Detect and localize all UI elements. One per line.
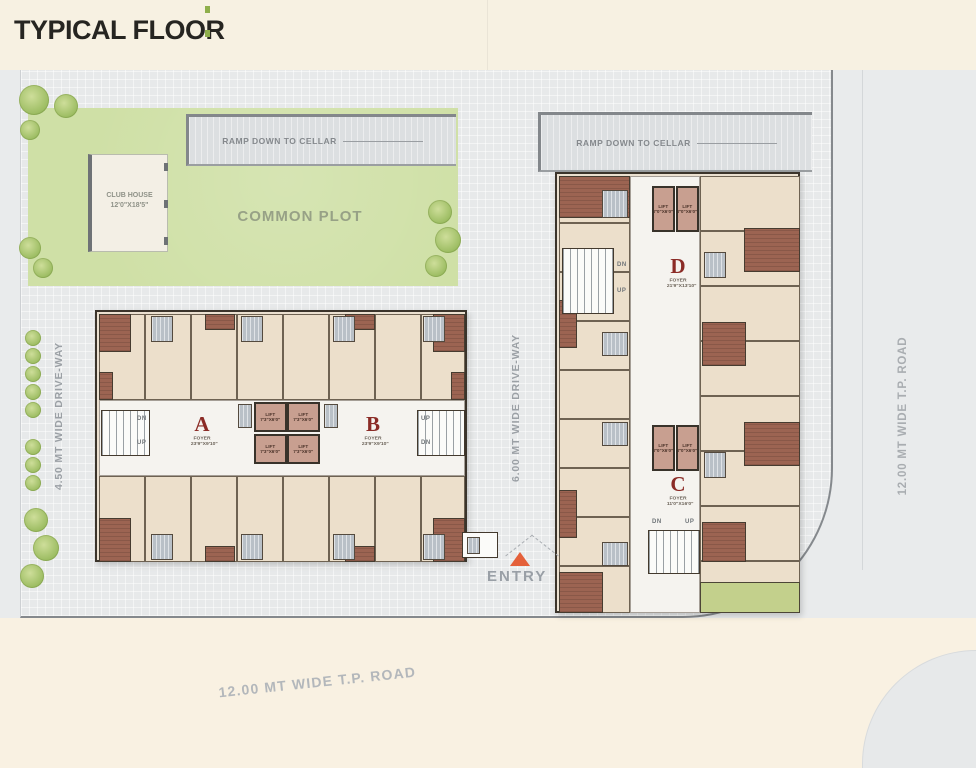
wet-area [423, 534, 445, 560]
balcony-patch [559, 572, 603, 613]
club-wall-tick [164, 200, 168, 208]
ramp-underline [343, 141, 423, 142]
balcony-patch [205, 314, 235, 330]
unit-cell [375, 476, 421, 562]
ramp-to-cellar-left: RAMP DOWN TO CELLAR [186, 114, 456, 166]
building-wing-d-c: LIFT7'0"X6'0" LIFT7'0"X6'0" LIFT7'0"X6'0… [555, 172, 800, 613]
wet-area [241, 534, 263, 560]
tree [435, 227, 461, 253]
stair-dn-label: DN [652, 519, 662, 525]
entry-arrow-icon [510, 552, 530, 566]
tree [425, 255, 447, 277]
title-accent-mark [205, 30, 210, 37]
shrub [25, 384, 41, 400]
shrub [25, 330, 41, 346]
club-wall-tick [164, 237, 168, 245]
wing-b-label: B FOYER23'9"X9'10" [355, 414, 391, 453]
wet-area [602, 542, 628, 566]
stair-up-label: UP [421, 416, 430, 422]
lift-shaft: LIFT7'3"X6'0" [287, 434, 320, 464]
lift-shaft: LIFT7'3"X6'0" [254, 434, 287, 464]
lift-shaft: LIFT7'3"X6'0" [287, 402, 320, 432]
wet-area [151, 534, 173, 560]
balcony-patch [702, 322, 746, 366]
unit-cell [375, 314, 421, 400]
lift-shaft: LIFT7'0"X6'0" [676, 186, 699, 232]
wet-area [241, 316, 263, 342]
page-title: TYPICAL FLOOR [14, 15, 225, 46]
staircase-c [648, 530, 700, 574]
unit-cell [700, 176, 800, 231]
wing-d-label: D FOYER21'9"X13'10" [660, 256, 696, 295]
balcony-patch [99, 372, 113, 400]
common-plot-label: COMMON PLOT [220, 208, 380, 225]
lift-shaft: LIFT7'0"X6'0" [652, 186, 675, 232]
balcony-patch [559, 490, 577, 538]
shrub [25, 348, 41, 364]
ramp-to-cellar-right: RAMP DOWN TO CELLAR [538, 112, 812, 172]
balcony-patch [99, 518, 131, 562]
shrub [25, 439, 41, 455]
balcony-patch [744, 228, 800, 272]
title-accent-mark [205, 6, 210, 13]
tree [20, 120, 40, 140]
stair-up-label: UP [685, 519, 694, 525]
right-tp-road-label: 12.00 MT WIDE T.P. ROAD [897, 331, 909, 501]
wet-area [333, 316, 355, 342]
club-wall-tick [164, 163, 168, 171]
ramp-right-label: RAMP DOWN TO CELLAR [576, 138, 691, 148]
wet-area [423, 316, 445, 342]
wet-area [602, 332, 628, 356]
unit-cell [559, 370, 630, 419]
tree [428, 200, 452, 224]
balcony-patch [99, 314, 131, 352]
wet-area [467, 537, 480, 554]
ramp-left-label: RAMP DOWN TO CELLAR [222, 136, 337, 146]
tree [24, 508, 48, 532]
club-house-label: CLUB HOUSE 12'0"X18'5" [92, 191, 167, 211]
stair-dn-label: DN [421, 440, 431, 446]
tree [19, 85, 49, 115]
lift-shaft: LIFT7'3"X6'0" [254, 402, 287, 432]
tree [54, 94, 78, 118]
entry-label: ENTRY [487, 568, 547, 585]
shrub [25, 457, 41, 473]
header-fold-line [487, 0, 488, 70]
road-curb-line [862, 70, 863, 570]
stair-up-label: UP [617, 288, 626, 294]
tree [20, 564, 44, 588]
stair-dn-label: DN [617, 262, 627, 268]
floor-plan-canvas: TYPICAL FLOOR COMMON PLOT CLUB HOUSE 12'… [0, 0, 976, 768]
unit-cell [283, 314, 329, 400]
balcony-patch [451, 372, 465, 400]
wet-area [333, 534, 355, 560]
wet-area [151, 316, 173, 342]
ramp-underline [697, 143, 777, 144]
wing-c-label: C FOYER11'0"X16'0" [660, 474, 696, 513]
balcony-patch [702, 522, 746, 562]
wet-area [602, 190, 628, 218]
wet-area [324, 404, 338, 428]
guard-cabin [462, 532, 498, 558]
stair-up-label: UP [137, 440, 146, 446]
wing-a-label: A FOYER23'9"X9'10" [184, 414, 220, 453]
shrub [25, 402, 41, 418]
wet-area [704, 252, 726, 278]
wet-area [704, 452, 726, 478]
center-driveway-label: 6.00 MT WIDE DRIVE-WAY [510, 328, 522, 488]
lift-shaft: LIFT7'0"X6'0" [652, 425, 675, 471]
balcony-patch [744, 422, 800, 466]
club-house: CLUB HOUSE 12'0"X18'5" [88, 154, 168, 252]
tree [33, 258, 53, 278]
lift-shaft: LIFT7'0"X6'0" [676, 425, 699, 471]
wet-area [238, 404, 252, 428]
garden-patch [700, 582, 800, 613]
tree [33, 535, 59, 561]
shrub [25, 366, 41, 382]
shrub [25, 475, 41, 491]
unit-cell [283, 476, 329, 562]
balcony-patch [205, 546, 235, 562]
tree [19, 237, 41, 259]
stair-dn-label: DN [137, 416, 147, 422]
left-driveway-label: 4.50 MT WIDE DRIVE-WAY [53, 336, 65, 496]
wet-area [602, 422, 628, 446]
building-wing-a-b: DN UP UP DN LIFT7'3"X6'0" LIFT7'3"X6'0" … [95, 310, 467, 562]
staircase-d [562, 248, 614, 314]
bottom-tp-road [0, 618, 976, 768]
